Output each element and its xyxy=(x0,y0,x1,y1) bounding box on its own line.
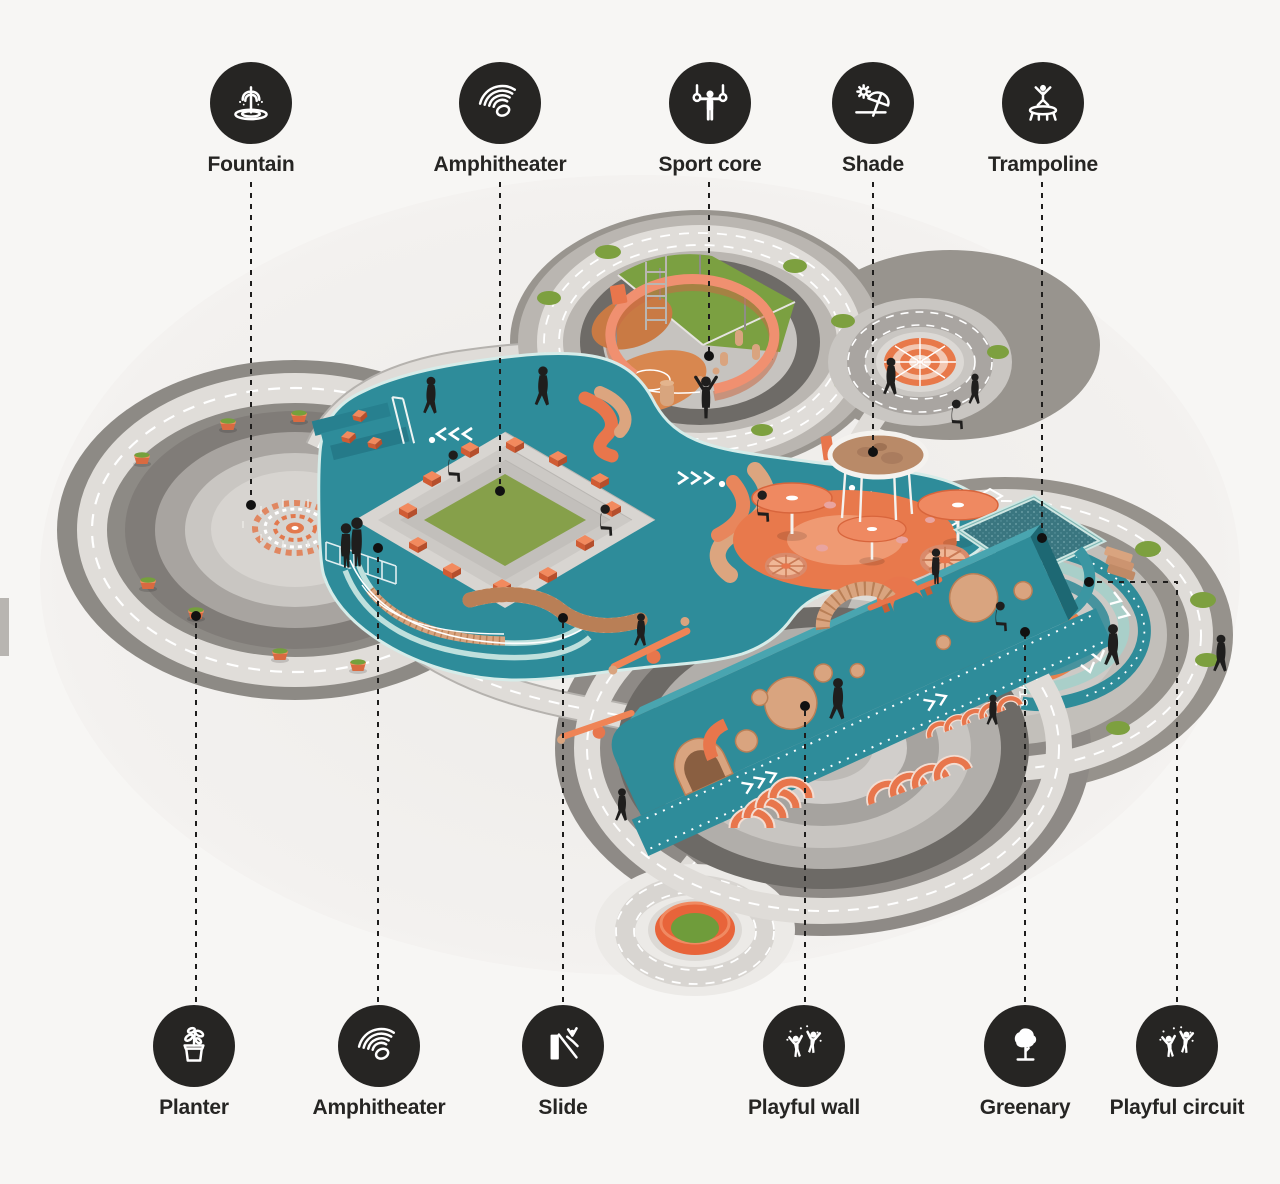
amphitheater-icon xyxy=(338,1005,420,1087)
slide-icon xyxy=(522,1005,604,1087)
legend-label: Shade xyxy=(842,153,904,177)
target-roundabout xyxy=(828,298,1012,426)
sport-core-icon xyxy=(669,62,751,144)
fountain-icon xyxy=(210,62,292,144)
legend-label: Playful circuit xyxy=(1110,1096,1245,1120)
legend-item-sport-core: Sport core xyxy=(615,62,805,177)
legend-label: Greenary xyxy=(980,1096,1071,1120)
legend-item-planter: Planter xyxy=(99,1005,289,1120)
playful-circuit-icon xyxy=(1136,1005,1218,1087)
legend-label: Planter xyxy=(159,1096,229,1120)
shade-icon xyxy=(832,62,914,144)
playful-wall-icon xyxy=(763,1005,845,1087)
legend-item-amphitheater-2: Amphitheater xyxy=(284,1005,474,1120)
legend-item-fountain: Fountain xyxy=(156,62,346,177)
legend-label: Fountain xyxy=(207,153,294,177)
amphitheater-icon xyxy=(459,62,541,144)
legend-item-slide: Slide xyxy=(468,1005,658,1120)
legend-item-playful-circuit: Playful circuit xyxy=(1082,1005,1272,1120)
page: { "page": { "background": "#f7f6f4" }, "… xyxy=(0,0,1280,1184)
legend-item-playful-wall: Playful wall xyxy=(709,1005,899,1120)
trampoline-icon xyxy=(1002,62,1084,144)
legend-label: Sport core xyxy=(658,153,761,177)
legend-label: Playful wall xyxy=(748,1096,860,1120)
legend-label: Amphitheater xyxy=(313,1096,446,1120)
legend-label: Trampoline xyxy=(988,153,1098,177)
legend-item-amphitheater: Amphitheater xyxy=(405,62,595,177)
legend-label: Slide xyxy=(538,1096,587,1120)
legend-label: Amphitheater xyxy=(434,153,567,177)
planter-icon xyxy=(153,1005,235,1087)
legend-item-shade: Shade xyxy=(778,62,968,177)
merry-go-round xyxy=(767,555,805,577)
greenary-icon xyxy=(984,1005,1066,1087)
edge-artifact xyxy=(0,598,9,656)
legend-item-trampoline: Trampoline xyxy=(948,62,1138,177)
